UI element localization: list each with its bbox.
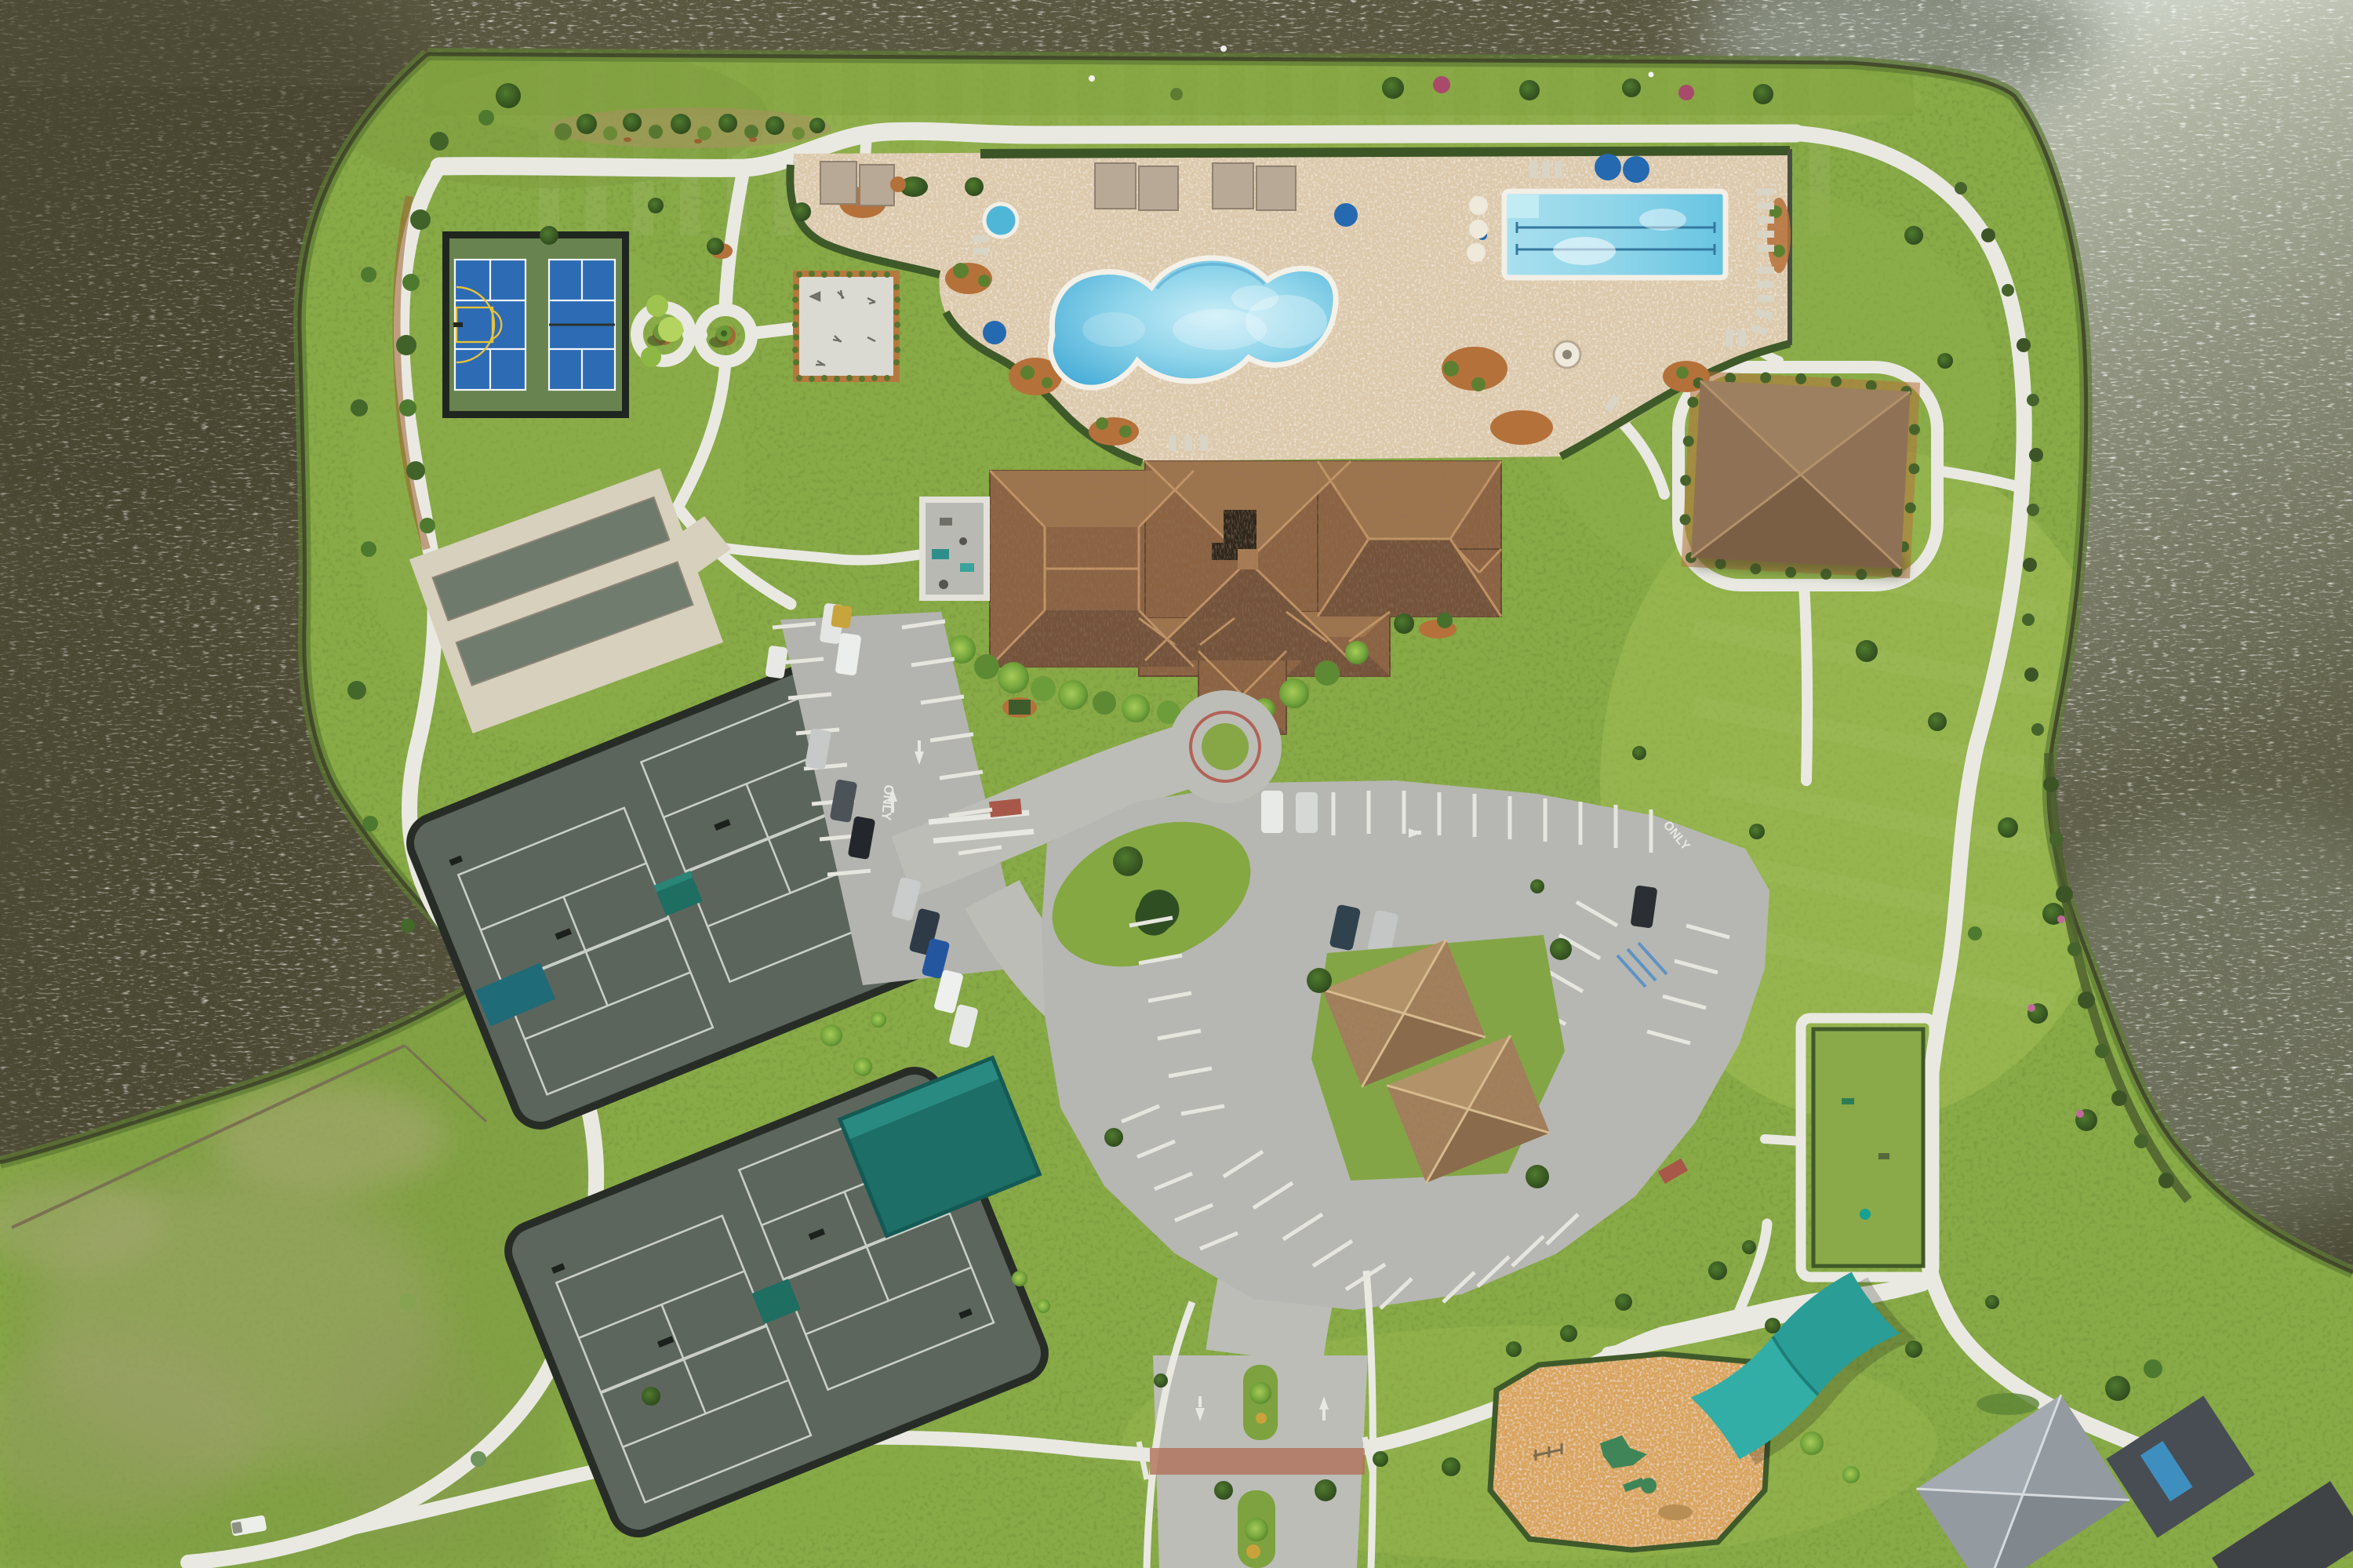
svg-text:ONLY: ONLY	[878, 784, 896, 822]
